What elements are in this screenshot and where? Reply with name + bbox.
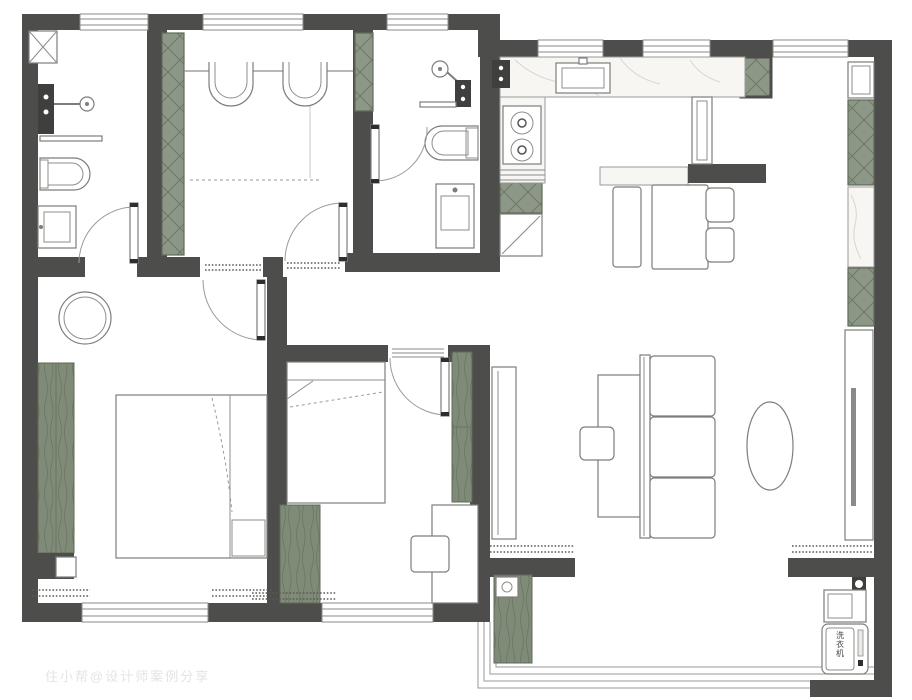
dining-chair-1 — [706, 188, 734, 222]
tv-wall — [845, 330, 873, 540]
bathroom2-vanity — [436, 184, 474, 248]
bed-1 — [116, 395, 267, 558]
shower-mixer — [455, 80, 471, 107]
mixer-knob — [44, 110, 49, 115]
wall-right — [874, 40, 892, 697]
window-bedroom2 — [322, 603, 433, 622]
kitchen-partition — [692, 97, 712, 164]
window-kitchen-1 — [538, 40, 603, 57]
right-wall-cabinet-1 — [848, 100, 874, 185]
desk-chair — [411, 536, 449, 572]
study-wardrobe — [162, 33, 184, 255]
door-leaf — [441, 358, 449, 416]
toilet — [40, 158, 90, 190]
right-wall-cabinet-marble — [848, 187, 874, 267]
bedroom2-cabinet — [280, 505, 320, 603]
floor-plan-drawing: 洗衣机 住小帮@设计师案例分享 — [0, 0, 912, 700]
kitchen-cabinet-green — [500, 183, 542, 213]
washing-machine: 洗衣机 — [822, 624, 868, 674]
wall-balcony-corner — [810, 680, 892, 697]
shower-head-center — [438, 67, 442, 71]
sofa-cushion — [650, 356, 715, 416]
towel-bar — [40, 136, 102, 141]
half-wall — [688, 164, 766, 183]
door-leaf — [257, 280, 265, 340]
mixer-knob — [461, 85, 465, 89]
right-wall-cabinet-2 — [848, 268, 874, 326]
shower-mixer — [38, 84, 54, 134]
door-leaf — [371, 125, 379, 183]
bathroom1-sink — [38, 206, 76, 248]
wall-living-balcony-west — [488, 558, 575, 577]
mixer-knob — [44, 95, 49, 100]
towel-bar — [420, 102, 456, 107]
duct-shaft — [355, 33, 373, 111]
doorway-study — [283, 257, 345, 277]
wall-bath2-kitchen — [480, 14, 500, 272]
sofa-back — [640, 355, 650, 538]
shower-head-center — [85, 102, 89, 106]
sofa-cushion — [650, 478, 715, 538]
dining-chair-2 — [706, 228, 734, 262]
laundry-sink-cabinet — [824, 590, 866, 622]
kitchen-sink — [556, 58, 610, 93]
wall-left — [22, 14, 38, 603]
hall-cabinet — [492, 367, 516, 539]
toilet — [425, 126, 478, 160]
bed-2 — [287, 362, 385, 503]
doorway-bedroom1 — [200, 257, 263, 277]
side-table — [580, 427, 614, 460]
gas-stove — [503, 106, 541, 164]
study-chair-2 — [283, 62, 327, 106]
window-bedroom1 — [82, 603, 208, 622]
dining-table — [652, 185, 708, 269]
door-leaf — [130, 203, 138, 263]
wall-bedroom2-top — [287, 345, 388, 362]
sofa — [640, 355, 715, 538]
round-side-table — [59, 292, 111, 344]
door-leaf — [339, 203, 347, 261]
laundry-area: 洗衣机 — [822, 577, 868, 674]
window-kitchen-2 — [643, 40, 710, 57]
mixer-knob — [461, 97, 465, 101]
bar-counter — [600, 167, 688, 185]
coffee-table — [747, 402, 793, 490]
watermark: 住小帮@设计师案例分享 — [45, 669, 210, 684]
dining-bench — [613, 187, 641, 267]
tv-cabinet — [845, 330, 873, 540]
window-top-1 — [80, 14, 148, 30]
study-chair-1 — [209, 62, 253, 106]
faucet — [855, 580, 863, 588]
shaft-box — [29, 31, 57, 63]
wall-living-balcony-east — [788, 558, 874, 577]
wall-appliance — [492, 60, 510, 88]
wall-mid-horizontal-east — [345, 253, 500, 272]
tv-screen — [851, 388, 856, 506]
floor-drain-box — [496, 577, 518, 597]
washing-machine-label: 洗衣机 — [836, 630, 845, 658]
doorway-bathroom1 — [85, 257, 137, 277]
sofa-cushion — [650, 417, 715, 477]
floor-plan: 洗衣机 住小帮@设计师案例分享 — [0, 0, 912, 700]
nightstand — [56, 557, 76, 577]
window-top-2 — [203, 14, 303, 30]
window-kitchen-3 — [773, 40, 848, 57]
window-top-3 — [387, 14, 448, 30]
kitchen-base-cabinet — [500, 214, 542, 256]
